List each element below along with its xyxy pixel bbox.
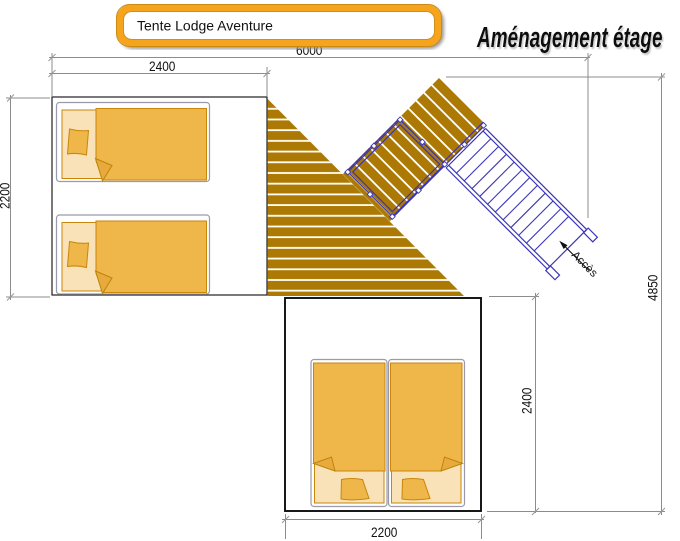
svg-text:2200: 2200 [0,183,13,209]
svg-text:2400: 2400 [149,58,175,74]
svg-text:Tente Lodge Aventure: Tente Lodge Aventure [137,18,273,34]
svg-text:Accès: Accès [569,249,600,280]
svg-text:2200: 2200 [371,524,397,540]
svg-text:4850: 4850 [645,275,661,301]
svg-text:2400: 2400 [519,388,535,414]
svg-text:Aménagement étage: Aménagement étage [476,22,662,54]
